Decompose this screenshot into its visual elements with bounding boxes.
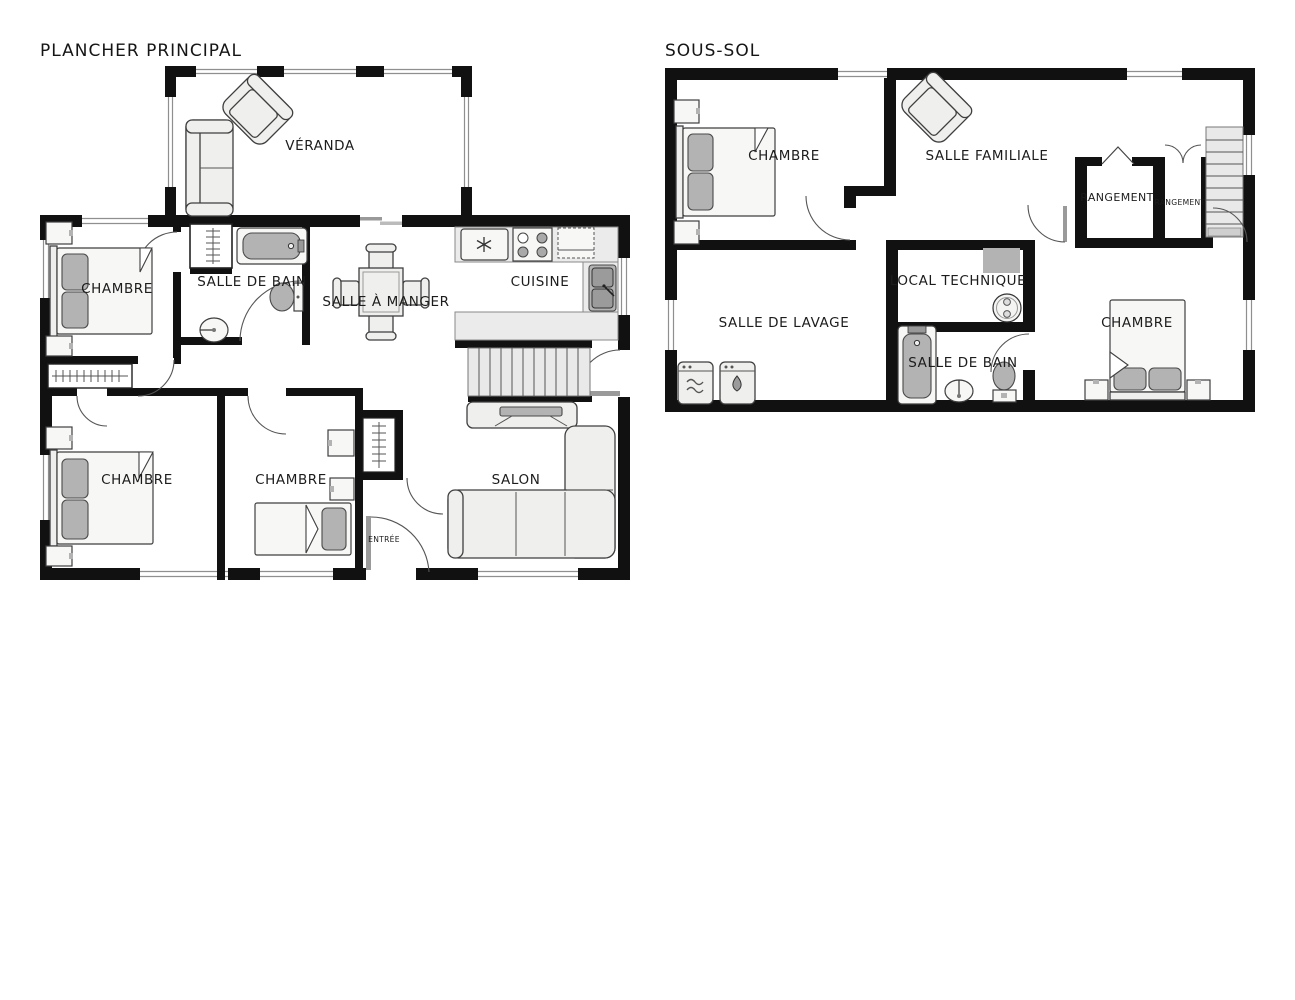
bathroom-sink <box>945 380 973 402</box>
dryer <box>720 362 755 404</box>
single-bed <box>255 430 354 555</box>
floor-title-basement: SOUS-SOL <box>665 41 760 61</box>
closet-door-fold <box>1102 147 1134 164</box>
dining-table <box>333 244 429 340</box>
room-label-chambre-5: CHAMBRE <box>1101 315 1173 331</box>
room-label-rangement-1: RANGEMENT <box>1080 191 1153 204</box>
room-label-chambre-2: CHAMBRE <box>101 472 173 488</box>
door-arc <box>77 396 107 426</box>
stove <box>513 228 552 261</box>
sliding-door <box>380 222 402 226</box>
dishwasher <box>558 228 594 258</box>
floorplan-page: PLANCHER PRINCIPAL <box>0 0 1295 1000</box>
room-label-salle-familiale: SALLE FAMILIALE <box>925 148 1048 164</box>
door-arc <box>806 196 850 240</box>
wardrobe-closet <box>48 364 132 388</box>
kitchen-sink <box>589 265 616 311</box>
room-label-cuisine: CUISINE <box>511 274 570 290</box>
basement: SOUS-SOL <box>665 41 1255 412</box>
floorplan-canvas: PLANCHER PRINCIPAL <box>0 0 1295 1000</box>
room-label-rangement-2: RANGEMENT <box>1155 198 1206 207</box>
bathroom-sink <box>200 318 228 342</box>
door-arc <box>248 396 286 434</box>
room-label-salle-a-manger: SALLE À MANGER <box>322 293 449 310</box>
bed <box>674 100 775 244</box>
room-label-salle-de-bain: SALLE DE BAIN <box>197 274 307 290</box>
fridge <box>461 229 508 260</box>
sofa-loveseat <box>186 120 233 216</box>
room-label-salon: SALON <box>492 472 541 488</box>
water-heater <box>993 294 1021 322</box>
room-label-chambre-1: CHAMBRE <box>81 281 153 297</box>
door-arc <box>407 478 443 514</box>
room-label-chambre-4: CHAMBRE <box>748 148 820 164</box>
room-label-veranda: VÉRANDA <box>285 137 355 154</box>
room-label-salle-de-bain-2: SALLE DE BAIN <box>908 355 1018 371</box>
tv-console <box>467 402 577 428</box>
wardrobe-closet <box>190 224 232 268</box>
main-floor: PLANCHER PRINCIPAL <box>40 41 630 580</box>
room-label-chambre-3: CHAMBRE <box>255 472 327 488</box>
door-arc <box>1028 205 1065 242</box>
armchair <box>898 70 974 146</box>
staircase <box>468 348 590 396</box>
closet-door-arc <box>1183 145 1201 163</box>
staircase <box>1206 127 1243 237</box>
wardrobe-closet <box>363 418 395 472</box>
room-label-salle-de-lavage: SALLE DE LAVAGE <box>719 315 850 331</box>
room-label-local-technique: LOCAL TECHNIQUE <box>890 273 1027 289</box>
washing-machine <box>678 362 713 404</box>
sliding-door <box>360 217 382 221</box>
bed <box>46 427 153 566</box>
room-label-entree: ENTRÉE <box>368 535 400 544</box>
door-arc <box>371 517 429 572</box>
electrical-panel <box>983 248 1020 273</box>
door-leaf <box>1063 206 1067 242</box>
sofa-sectional <box>448 426 615 558</box>
bathtub <box>237 228 307 264</box>
floor-title-main: PLANCHER PRINCIPAL <box>40 41 242 61</box>
closet-door-arc <box>1165 145 1183 163</box>
